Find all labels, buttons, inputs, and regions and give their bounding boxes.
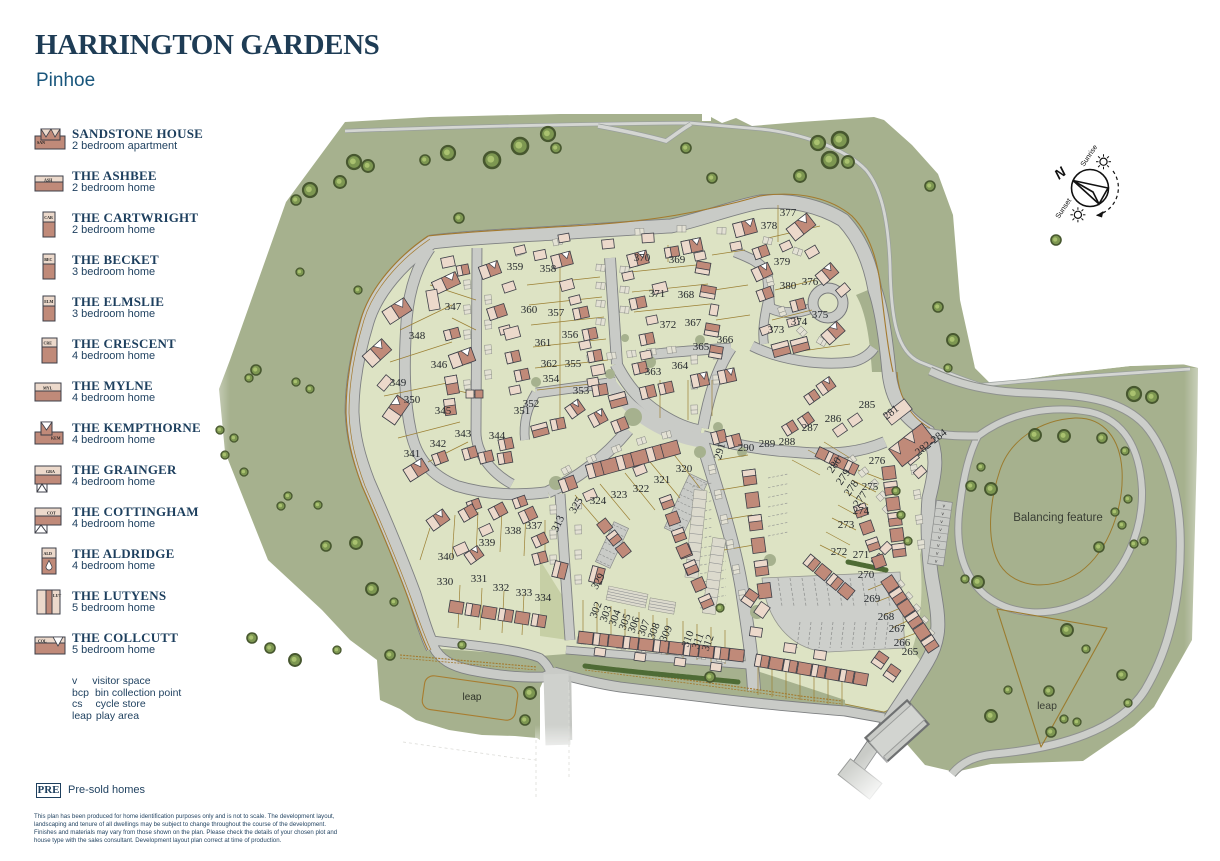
svg-text:321: 321 (654, 474, 671, 486)
svg-text:341: 341 (404, 448, 421, 460)
svg-text:COL: COL (38, 639, 47, 644)
svg-text:SAN: SAN (37, 140, 45, 145)
svg-text:334: 334 (535, 592, 552, 604)
svg-text:273: 273 (838, 519, 855, 531)
svg-text:286: 286 (825, 413, 842, 425)
svg-text:369: 369 (669, 254, 686, 266)
svg-text:346: 346 (431, 359, 448, 371)
svg-text:leap: leap (463, 692, 482, 703)
svg-text:378: 378 (761, 220, 778, 232)
svg-text:330: 330 (437, 576, 454, 588)
svg-text:359: 359 (507, 261, 524, 273)
svg-text:287: 287 (802, 422, 819, 434)
svg-text:373: 373 (768, 324, 785, 336)
svg-text:267: 267 (889, 623, 906, 635)
svg-text:333: 333 (516, 587, 533, 599)
svg-text:363: 363 (645, 366, 662, 378)
svg-text:N: N (1051, 163, 1070, 182)
svg-text:380: 380 (780, 280, 797, 292)
svg-text:366: 366 (717, 334, 734, 346)
svg-text:MYL: MYL (43, 386, 53, 391)
svg-text:285: 285 (859, 399, 876, 411)
svg-text:322: 322 (633, 483, 650, 495)
svg-text:275: 275 (862, 481, 879, 493)
svg-text:KEM: KEM (51, 436, 61, 441)
svg-text:276: 276 (869, 455, 886, 467)
svg-text:leap: leap (1037, 700, 1057, 712)
svg-text:354: 354 (543, 373, 560, 385)
svg-text:367: 367 (685, 317, 702, 329)
svg-text:ELM: ELM (44, 299, 53, 304)
svg-text:CAR: CAR (44, 215, 53, 220)
svg-text:344: 344 (489, 430, 506, 442)
svg-text:Balancing feature: Balancing feature (1013, 512, 1103, 524)
svg-text:CRE: CRE (44, 341, 53, 346)
svg-text:268: 268 (878, 611, 895, 623)
svg-text:375: 375 (812, 309, 829, 321)
svg-text:272: 272 (831, 546, 848, 558)
svg-text:Sunrise: Sunrise (1078, 143, 1099, 168)
svg-text:324: 324 (590, 495, 607, 507)
svg-text:ASH: ASH (44, 178, 53, 183)
svg-text:320: 320 (676, 463, 693, 475)
svg-text:ALD: ALD (44, 551, 53, 556)
svg-text:337: 337 (526, 520, 543, 532)
svg-text:265: 265 (902, 646, 919, 658)
svg-text:323: 323 (611, 489, 628, 501)
svg-text:379: 379 (774, 256, 791, 268)
svg-text:332: 332 (493, 582, 510, 594)
svg-text:356: 356 (562, 329, 579, 341)
svg-text:339: 339 (479, 537, 496, 549)
svg-text:352: 352 (523, 398, 540, 410)
svg-text:353: 353 (573, 385, 590, 397)
svg-text:368: 368 (678, 289, 695, 301)
svg-text:372: 372 (660, 319, 677, 331)
svg-text:345: 345 (435, 405, 452, 417)
svg-text:343: 343 (455, 428, 472, 440)
svg-text:364: 364 (672, 360, 689, 372)
svg-text:377: 377 (780, 207, 797, 219)
svg-text:288: 288 (779, 436, 796, 448)
svg-text:342: 342 (430, 438, 447, 450)
svg-text:365: 365 (693, 341, 710, 353)
svg-text:348: 348 (409, 330, 426, 342)
svg-text:BEC: BEC (44, 257, 52, 262)
svg-text:374: 374 (791, 316, 808, 328)
svg-text:362: 362 (541, 358, 558, 370)
svg-text:289: 289 (759, 438, 776, 450)
svg-text:Sunset: Sunset (1053, 197, 1073, 221)
svg-text:270: 270 (858, 569, 875, 581)
svg-text:LUT: LUT (53, 593, 62, 598)
svg-text:360: 360 (521, 304, 538, 316)
svg-text:358: 358 (540, 263, 557, 275)
svg-text:349: 349 (390, 377, 407, 389)
svg-text:376: 376 (802, 276, 819, 288)
svg-text:371: 371 (649, 288, 666, 300)
svg-text:355: 355 (565, 358, 582, 370)
svg-text:370: 370 (634, 252, 651, 264)
svg-text:269: 269 (864, 593, 881, 605)
svg-text:271: 271 (853, 549, 870, 561)
svg-text:COT: COT (47, 511, 56, 516)
svg-text:357: 357 (548, 307, 565, 319)
svg-text:361: 361 (535, 337, 552, 349)
svg-text:338: 338 (505, 525, 522, 537)
svg-text:347: 347 (445, 301, 462, 313)
svg-text:340: 340 (438, 551, 455, 563)
svg-text:350: 350 (404, 394, 421, 406)
svg-text:290: 290 (738, 442, 755, 454)
svg-text:GRA: GRA (46, 469, 55, 474)
svg-text:331: 331 (471, 573, 488, 585)
